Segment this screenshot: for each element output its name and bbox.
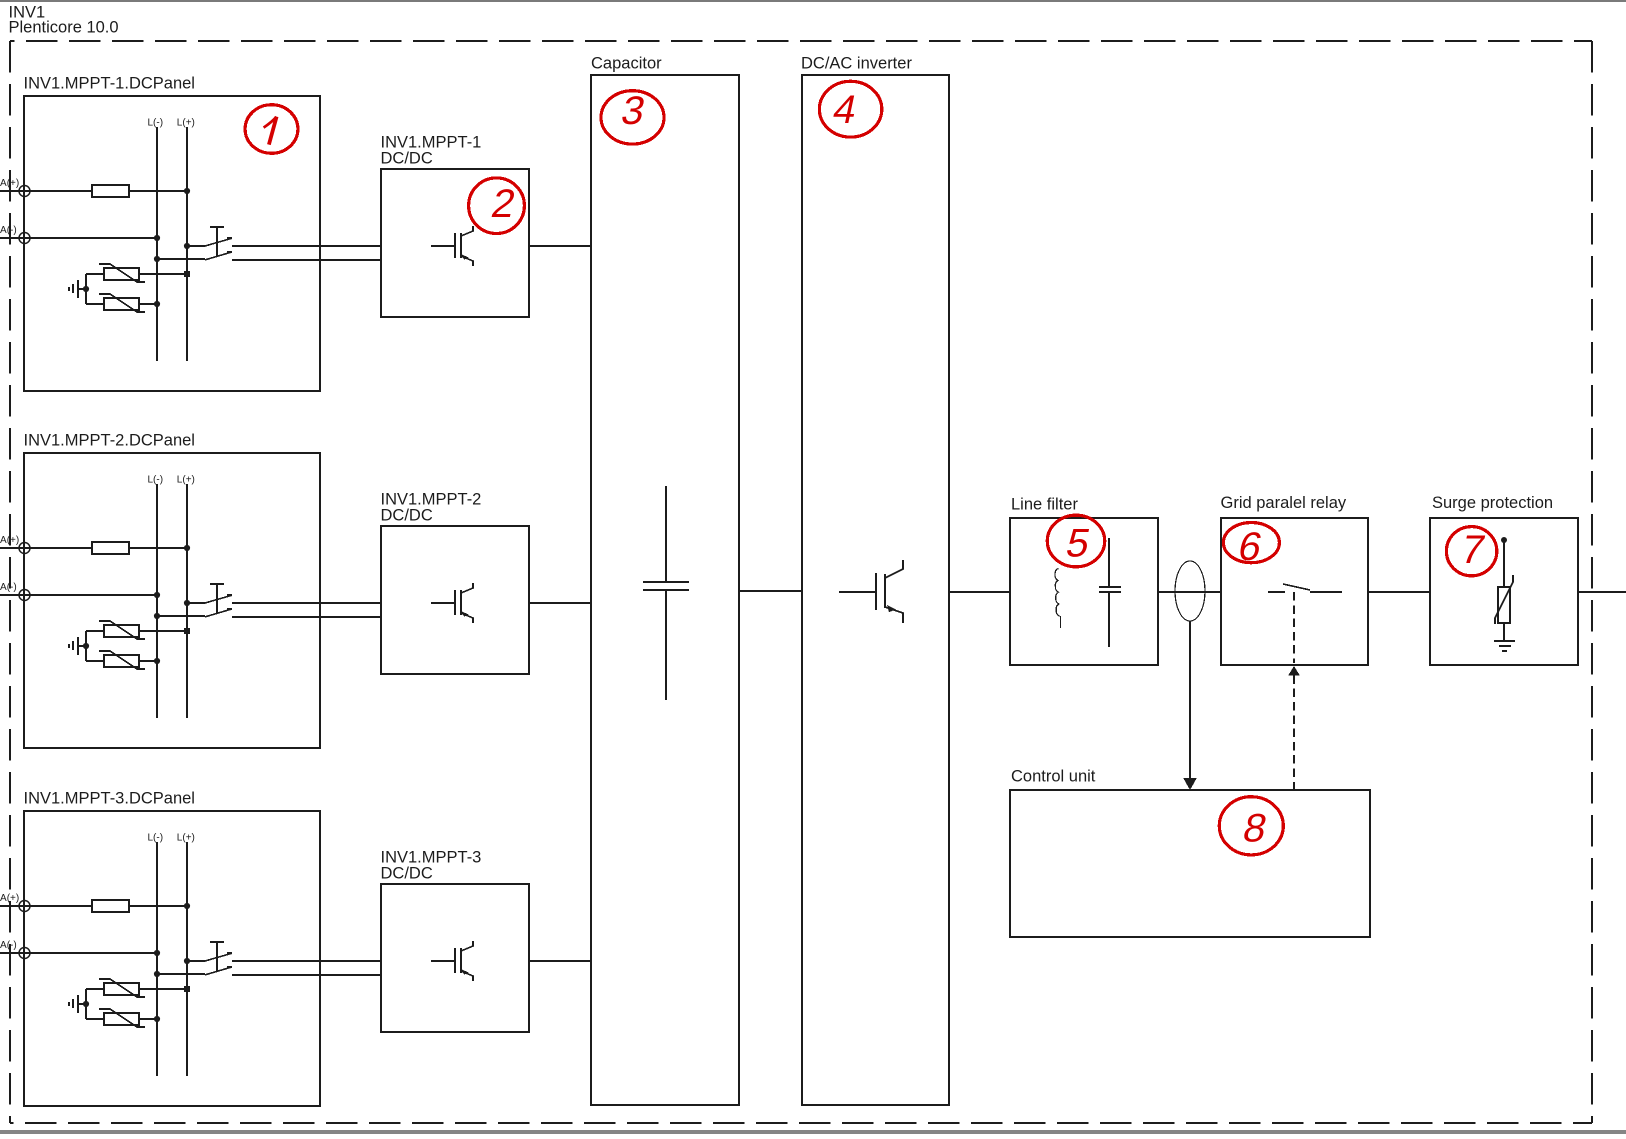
svg-text:INV1.MPPT-3.DCPanel: INV1.MPPT-3.DCPanel — [24, 790, 195, 808]
svg-text:DC/DC: DC/DC — [381, 865, 433, 883]
svg-text:2A(+): 2A(+) — [0, 535, 19, 546]
svg-text:DC/AC inverter: DC/AC inverter — [801, 54, 912, 72]
svg-text:L(+): L(+) — [177, 475, 195, 486]
svg-text:3A(+): 3A(+) — [0, 893, 19, 904]
svg-text:3A(-): 3A(-) — [0, 940, 17, 951]
svg-text:Control unit: Control unit — [1011, 768, 1096, 786]
svg-text:Grid paralel relay: Grid paralel relay — [1221, 494, 1347, 512]
svg-text:2A(-): 2A(-) — [0, 582, 17, 593]
svg-text:Plenticore 10.0: Plenticore 10.0 — [9, 19, 119, 37]
svg-text:L(+): L(+) — [177, 833, 195, 844]
svg-text:Surge protection: Surge protection — [1432, 494, 1553, 512]
svg-text:1A(+): 1A(+) — [0, 178, 19, 189]
svg-text:DC/DC: DC/DC — [381, 507, 433, 525]
svg-text:INV1.MPPT-1.DCPanel: INV1.MPPT-1.DCPanel — [24, 75, 195, 93]
svg-text:L(-): L(-) — [148, 833, 164, 844]
svg-text:INV1.MPPT-2.DCPanel: INV1.MPPT-2.DCPanel — [24, 432, 195, 450]
svg-text:1A(-): 1A(-) — [0, 225, 17, 236]
svg-text:DC/DC: DC/DC — [381, 150, 433, 168]
svg-text:L(-): L(-) — [148, 118, 164, 129]
svg-text:Capacitor: Capacitor — [591, 54, 662, 72]
svg-text:L(+): L(+) — [177, 118, 195, 129]
svg-text:L(-): L(-) — [148, 475, 164, 486]
svg-text:Line filter: Line filter — [1011, 496, 1078, 514]
